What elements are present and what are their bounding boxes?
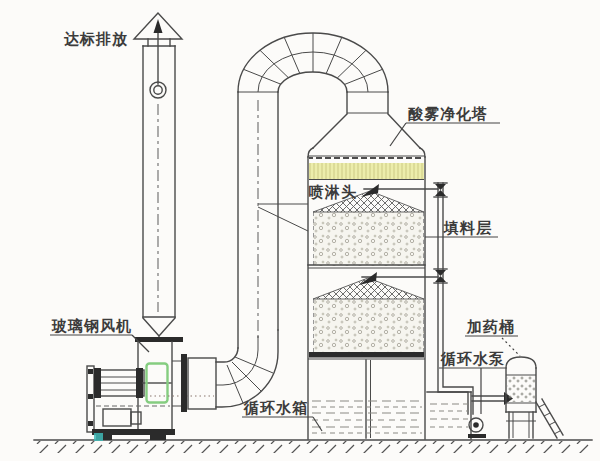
recirculation-piping: [434, 183, 473, 414]
fan-drive-unit: [96, 406, 170, 426]
label-fan: 玻璃钢风机: [51, 317, 132, 335]
callouts: 达标排放 酸雾净化塔 喷淋头 填料层 玻璃钢风机 加药桶 循环水泵 循环水箱: [50, 30, 520, 431]
valve-2: [434, 269, 447, 283]
valve-1: [434, 183, 447, 197]
ground-hatch: [36, 441, 592, 453]
fan-motor: [94, 368, 144, 398]
label-tower: 酸雾净化塔: [408, 105, 488, 123]
circulating-tank: [312, 360, 422, 438]
up-arrow-icon: [154, 19, 163, 84]
packing-layer-1: [313, 191, 424, 266]
purification-tower: [308, 114, 438, 439]
ground: [34, 440, 592, 453]
label-spray-head: 喷淋头: [309, 183, 357, 201]
fan-base: [92, 429, 175, 435]
flex-connector: [188, 358, 216, 409]
label-packing-layer: 填料层: [443, 219, 492, 237]
side-sump: [427, 392, 471, 439]
diagram-canvas: 达标排放 酸雾净化塔 喷淋头 填料层 玻璃钢风机 加药桶 循环水泵 循环水箱: [0, 0, 600, 461]
stack-flange: [135, 337, 183, 342]
label-emission: 达标排放: [63, 30, 128, 48]
process-diagram: 达标排放 酸雾净化塔 喷淋头 填料层 玻璃钢风机 加药桶 循环水泵 循环水箱: [0, 0, 600, 461]
barrel-ladder: [536, 399, 563, 438]
support-grate: [309, 352, 424, 358]
packing-layer-2: [313, 278, 424, 352]
label-circulating-pump: 循环水泵: [440, 350, 505, 368]
dosing-barrel: [506, 357, 563, 438]
frp-fan: [87, 342, 216, 441]
tower-lid-hatch: [309, 157, 424, 163]
label-circulating-tank: 循环水箱: [243, 399, 308, 417]
base-teal-mark: [94, 433, 103, 441]
exhaust-stack: [134, 13, 183, 342]
inlet-flange: [181, 354, 187, 412]
label-dosing-barrel: 加药桶: [466, 318, 515, 336]
